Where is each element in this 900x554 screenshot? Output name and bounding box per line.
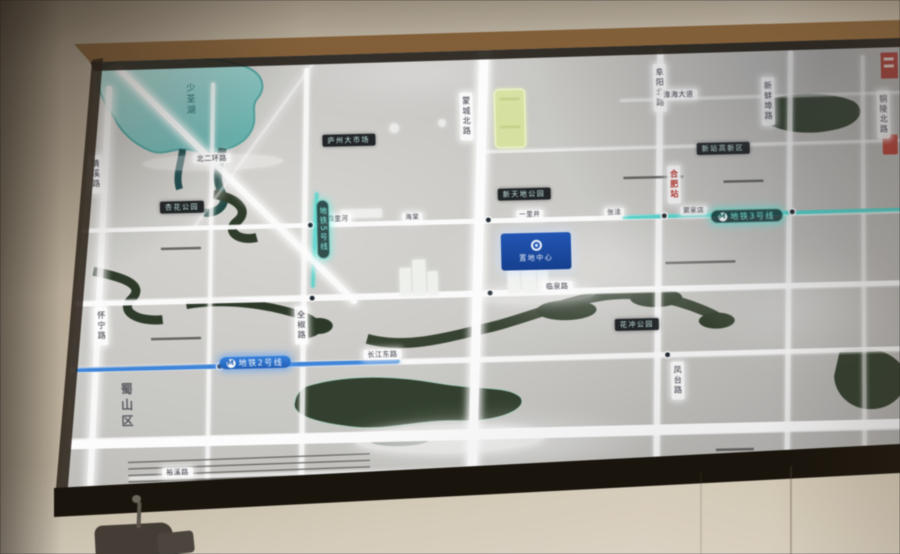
scene: 蒙城北路阜阳北路新蚌埠路铜陵北路全椒路怀宁路凤台路清溪路合肥站北二环路临泉路长江…	[0, 0, 900, 554]
wall-seam	[790, 466, 792, 554]
photo-of-illuminated-map: 蒙城北路阜阳北路新蚌埠路铜陵北路全椒路怀宁路凤台路清溪路合肥站北二环路临泉路长江…	[0, 0, 900, 554]
model-object	[157, 530, 195, 554]
model-object-knob	[132, 495, 141, 503]
wall-seam	[700, 472, 702, 554]
